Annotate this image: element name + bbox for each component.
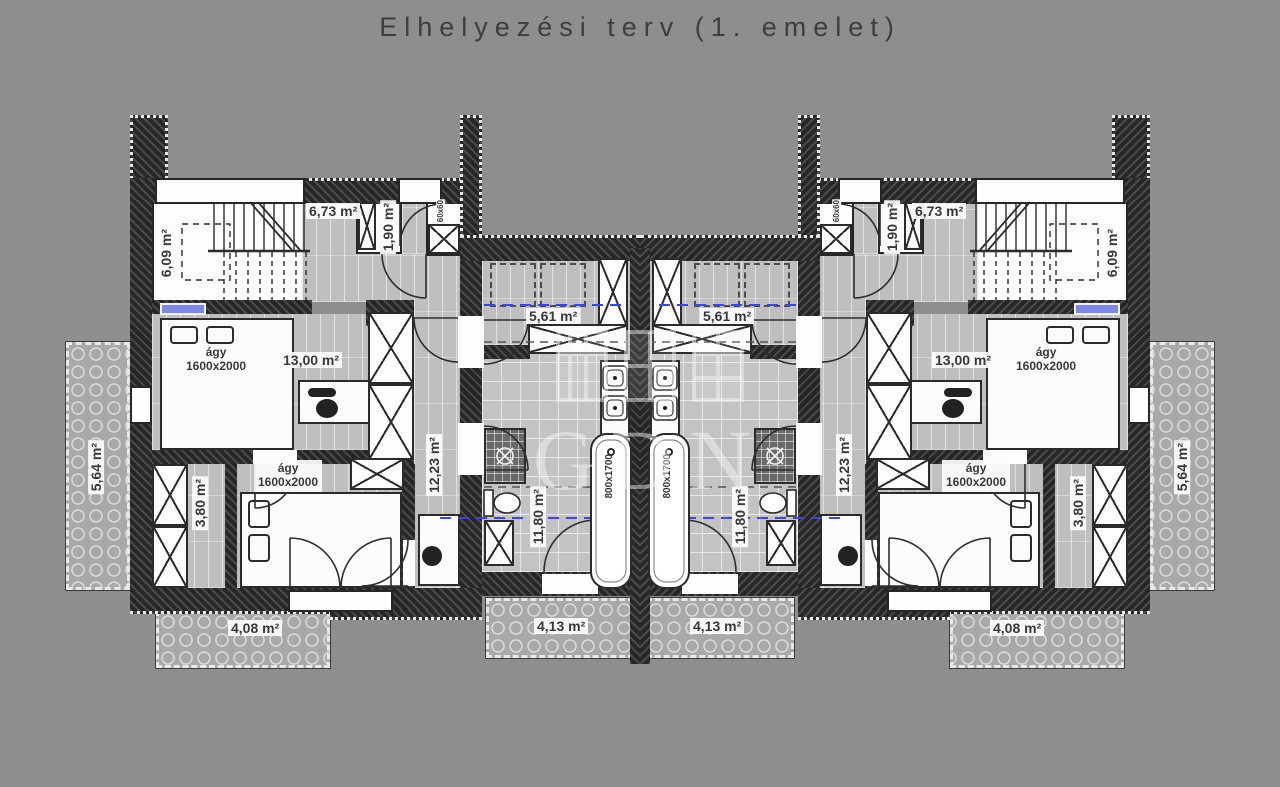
staircase-room-floor: [970, 202, 1128, 302]
wardrobe-cabinet: [368, 312, 414, 384]
pillow: [206, 326, 234, 344]
chair-2: [422, 546, 442, 566]
wall-party: [640, 248, 650, 664]
monitor-1: [944, 388, 972, 397]
wardrobe-cabinet: [152, 464, 188, 526]
pillow: [248, 534, 270, 562]
pillow: [1082, 326, 1110, 344]
side-balcony-floor: [1150, 342, 1214, 590]
wc-door-floor-patch: [402, 198, 426, 254]
shower-stall: [754, 428, 796, 484]
chair-1: [316, 399, 338, 418]
wardrobe-cabinet: [866, 384, 912, 460]
wall-party: [630, 248, 640, 664]
wall-top-stub: [1112, 115, 1150, 185]
wall-bath-dressing: [482, 345, 530, 359]
wardrobe-cabinet: [368, 384, 414, 460]
unit-graphics-left: [0, 0, 640, 787]
wardrobe-cabinet: [652, 258, 682, 326]
bedroom-window: [1074, 303, 1120, 315]
vanity-counter: [600, 360, 630, 438]
wardrobe-cabinet: [876, 458, 930, 490]
door-gap-balcony: [682, 574, 738, 594]
front-terrace-floor: [950, 610, 1124, 668]
bathroom-cabinet: [484, 520, 514, 566]
pillow: [1010, 500, 1032, 528]
pillow: [248, 500, 270, 528]
pillow: [170, 326, 198, 344]
planned-cabinet: [744, 263, 790, 307]
door-gap-terrace: [288, 590, 393, 612]
door-gap-hall-top: [838, 178, 882, 204]
side-balcony-floor: [66, 342, 130, 590]
planned-cabinet: [540, 263, 586, 307]
door-gap-dressing: [458, 316, 484, 368]
door-gap-bathroom: [796, 423, 822, 475]
shower-stall: [484, 428, 526, 484]
planned-cabinet: [490, 263, 536, 307]
wardrobe-cabinet: [528, 324, 628, 354]
shaft-x: [428, 224, 460, 254]
door-gap-hall-top: [398, 178, 442, 204]
wall-top-stub: [130, 115, 168, 185]
pillow: [1010, 534, 1032, 562]
wardrobe-cabinet: [350, 458, 404, 490]
stair-lintel: [975, 178, 1125, 204]
door-gap-divider: [253, 450, 297, 464]
wc-cabinet: [904, 202, 922, 250]
door-gap-divider: [983, 450, 1027, 464]
door-gap-bedroom2: [403, 540, 415, 586]
door-gap-bedroom2: [865, 540, 877, 586]
wardrobe-cabinet: [1092, 526, 1128, 588]
stair-lintel: [155, 178, 305, 204]
wc-door-floor-patch: [854, 198, 878, 254]
wall-bath-dressing: [750, 345, 798, 359]
center-balcony-floor: [646, 598, 794, 658]
door-gap-terrace: [887, 590, 992, 612]
wardrobe-cabinet: [866, 312, 912, 384]
floor-plan: 6,09 m² 6,73 m² 1,90 m² 60x60 13,00 m² á…: [0, 0, 1280, 787]
wc-cabinet: [358, 202, 376, 250]
wardrobe-cabinet: [1092, 464, 1128, 526]
floor-plan-canvas: Elhelyezési terv (1. emelet): [0, 0, 1280, 787]
window-gap-side-balcony: [130, 386, 152, 424]
chair-2: [838, 546, 858, 566]
wall-wardrobe-divider: [225, 464, 237, 588]
wardrobe-cabinet: [652, 324, 752, 354]
chair-1: [942, 399, 964, 418]
window-gap-side-balcony: [1128, 386, 1150, 424]
center-balcony-floor: [486, 598, 634, 658]
monitor-1: [308, 388, 336, 397]
bathroom-cabinet: [766, 520, 796, 566]
pillow: [1046, 326, 1074, 344]
planned-cabinet: [694, 263, 740, 307]
front-terrace-floor: [156, 610, 330, 668]
staircase-room-floor: [152, 202, 310, 302]
door-gap-dressing: [796, 316, 822, 368]
bedroom-window: [160, 303, 206, 315]
wall-wardrobe-divider: [1043, 464, 1055, 588]
unit-graphics-right: [640, 0, 1280, 787]
wardrobe-cabinet: [598, 258, 628, 326]
shaft-x: [820, 224, 852, 254]
vanity-counter: [650, 360, 680, 438]
wardrobe-cabinet: [152, 526, 188, 588]
door-gap-balcony: [542, 574, 598, 594]
door-gap-bathroom: [458, 423, 484, 475]
